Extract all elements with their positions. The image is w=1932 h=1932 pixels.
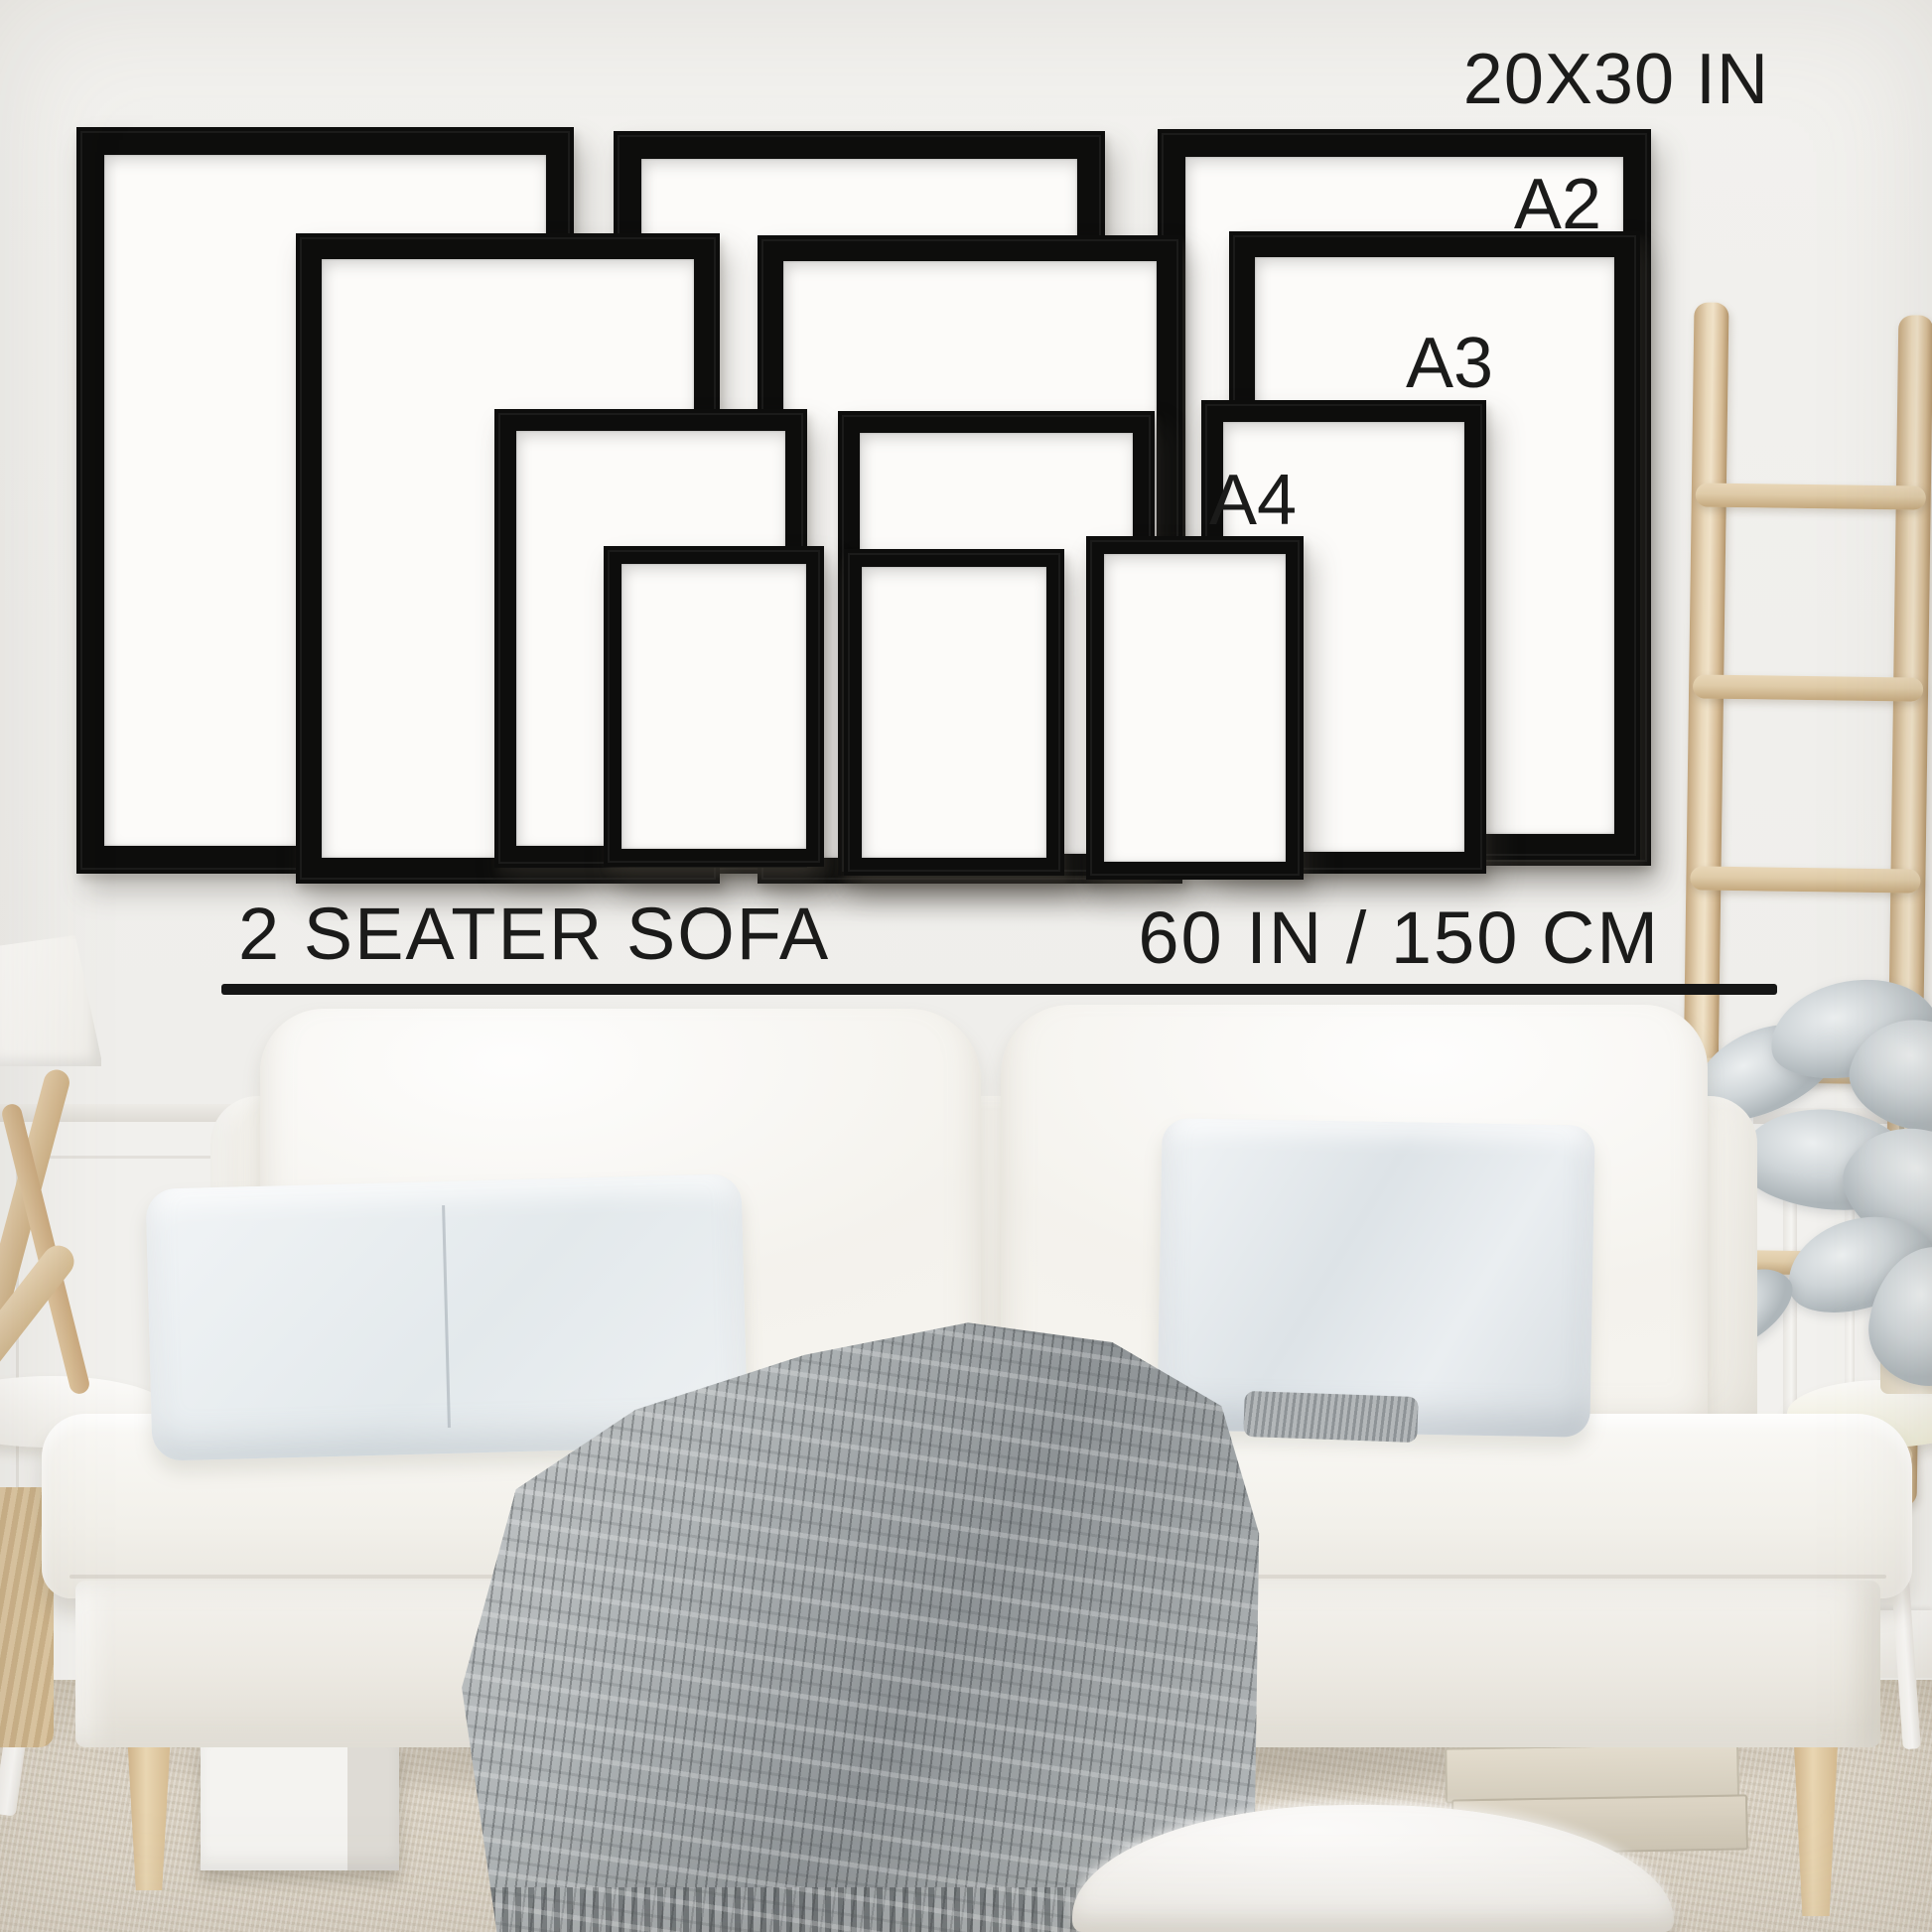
size-label-a3: A3 [1406, 328, 1493, 399]
sofa-width-line [221, 984, 1777, 995]
storage-box-under-sofa [201, 1743, 399, 1870]
blanket-fold-on-seat [1243, 1391, 1418, 1443]
ladder-rung [1696, 483, 1926, 509]
throw-pillow-right [1157, 1118, 1594, 1438]
frame-paper [1104, 554, 1286, 862]
frame-size-guide-scene: 20X30 IN A2 A3 A4 2 SEATER SOFA 60 IN / … [0, 0, 1932, 1932]
frame-a4-right [1086, 536, 1304, 880]
frame-a4-left [604, 546, 824, 867]
sofa-label: 2 SEATER SOFA [238, 897, 830, 971]
size-label-a2: A2 [1514, 169, 1601, 240]
frame-paper [621, 564, 806, 849]
frame-a4-middle [844, 549, 1064, 876]
ladder-rung [1693, 674, 1923, 701]
sofa-width-label: 60 IN / 150 CM [1138, 901, 1660, 975]
frame-paper [862, 567, 1046, 858]
size-label-a4: A4 [1209, 465, 1297, 536]
ladder-rung [1690, 866, 1920, 893]
size-label-20x30: 20X30 IN [1463, 44, 1769, 115]
table-lamp-shade [0, 935, 101, 1066]
